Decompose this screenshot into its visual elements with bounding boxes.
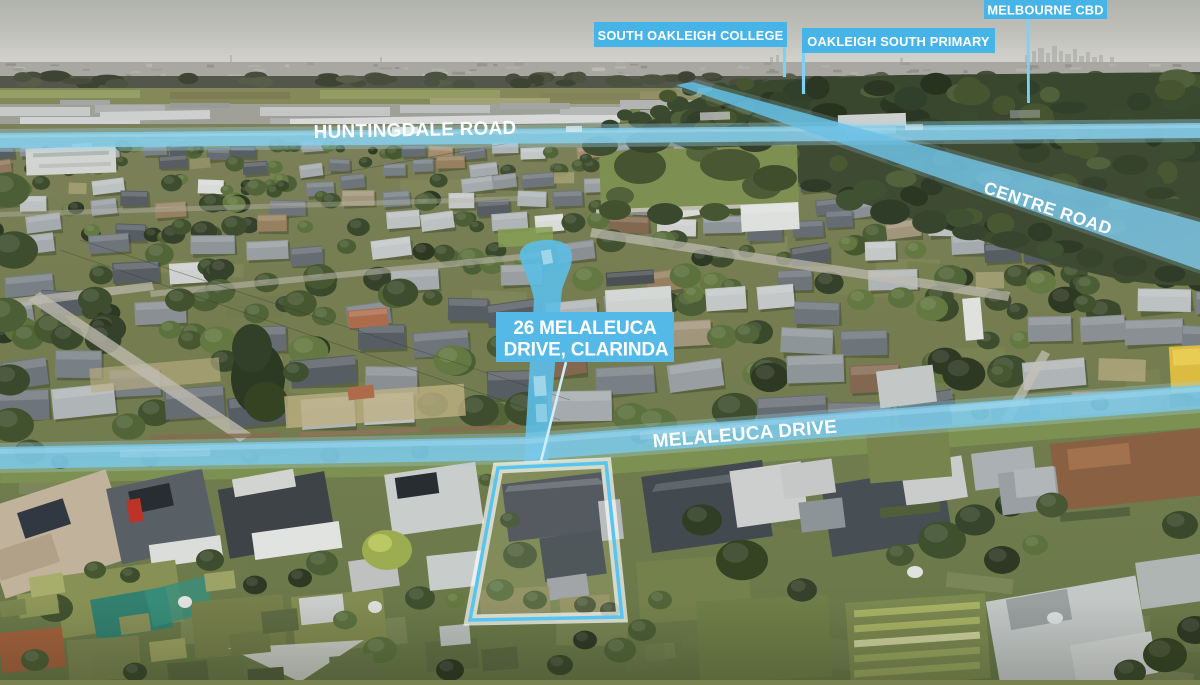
svg-text:MELBOURNE CBD: MELBOURNE CBD xyxy=(987,3,1103,18)
svg-text:DRIVE, CLARINDA: DRIVE, CLARINDA xyxy=(504,340,669,361)
svg-text:OAKLEIGH SOUTH PRIMARY: OAKLEIGH SOUTH PRIMARY xyxy=(807,34,990,49)
svg-text:HUNTINGDALE ROAD: HUNTINGDALE ROAD xyxy=(313,118,516,143)
svg-text:SOUTH OAKLEIGH COLLEGE: SOUTH OAKLEIGH COLLEGE xyxy=(598,28,784,43)
svg-text:26 MELALEUCA: 26 MELALEUCA xyxy=(513,318,657,339)
